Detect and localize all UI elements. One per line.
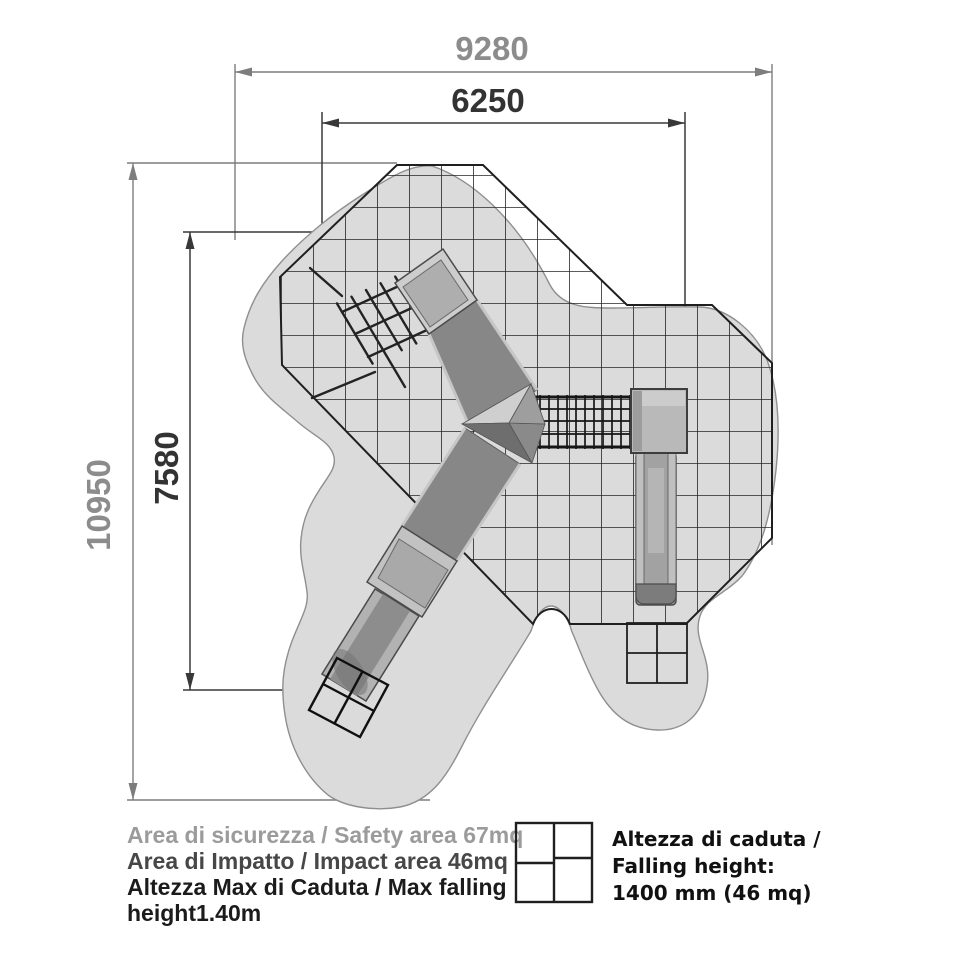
plan-drawing: 9280 6250 10950 7580 Area di sicurezza /… — [0, 0, 954, 955]
note-safety-area: Area di sicurezza / Safety area 67mq — [127, 822, 523, 848]
playground-plan-canvas: 9280 6250 10950 7580 Area di sicurezza /… — [0, 0, 954, 955]
dim-label-9280: 9280 — [455, 30, 528, 67]
legend-line-1: Altezza di caduta / — [612, 827, 821, 851]
legend-line-3: 1400 mm (46 mq) — [612, 881, 812, 905]
falling-height-grid-icon — [516, 823, 592, 902]
legend-line-2: Falling height: — [612, 854, 775, 878]
dim-label-10950: 10950 — [80, 459, 117, 551]
note-max-falling-2: height1.40m — [127, 900, 261, 926]
right-slide-end-cap — [636, 584, 676, 604]
dim-label-7580: 7580 — [148, 431, 185, 504]
dim-label-6250: 6250 — [451, 82, 524, 119]
right-tower — [631, 389, 687, 453]
right-slide — [636, 453, 676, 605]
notes-block: Area di sicurezza / Safety area 67mq Are… — [127, 822, 523, 926]
note-max-falling-1: Altezza Max di Caduta / Max falling — [127, 874, 507, 900]
note-impact-area: Area di Impatto / Impact area 46mq — [127, 848, 508, 874]
legend-block: Altezza di caduta / Falling height: 1400… — [516, 823, 821, 905]
